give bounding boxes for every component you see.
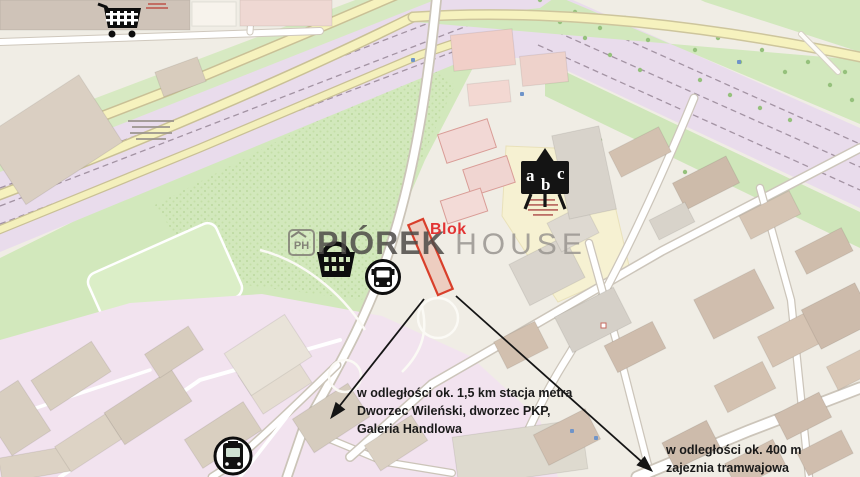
brand-name-primary: PIÓREK: [317, 225, 446, 261]
annotation-metro-line3: Galeria Handlowa: [357, 420, 572, 438]
annotation-tram-line2: zajeznia tramwajowa: [666, 459, 801, 477]
logo-text: PH: [294, 241, 309, 252]
brand-name-secondary: HOUSE: [455, 228, 587, 261]
property-map-image: a b c PH PIÓREK HOUSE Blok w odległości …: [0, 0, 860, 477]
annotation-metro-line2: Dworzec Wileński, dworzec PKP,: [357, 402, 572, 420]
watermark-layer: PH PIÓREK HOUSE Blok w odległości ok. 1,…: [0, 0, 860, 477]
ph-house-logo: PH: [288, 229, 315, 256]
annotation-metro-distance: w odległości ok. 1,5 km stacja metra Dwo…: [357, 384, 572, 438]
logo-roof-icon: [290, 231, 307, 238]
annotation-metro-line1: w odległości ok. 1,5 km stacja metra: [357, 384, 572, 402]
annotation-tram-line1: w odległości ok. 400 m: [666, 441, 801, 459]
property-label: Blok: [430, 221, 467, 239]
annotation-tram-depot-distance: w odległości ok. 400 m zajeznia tramwajo…: [666, 441, 801, 477]
